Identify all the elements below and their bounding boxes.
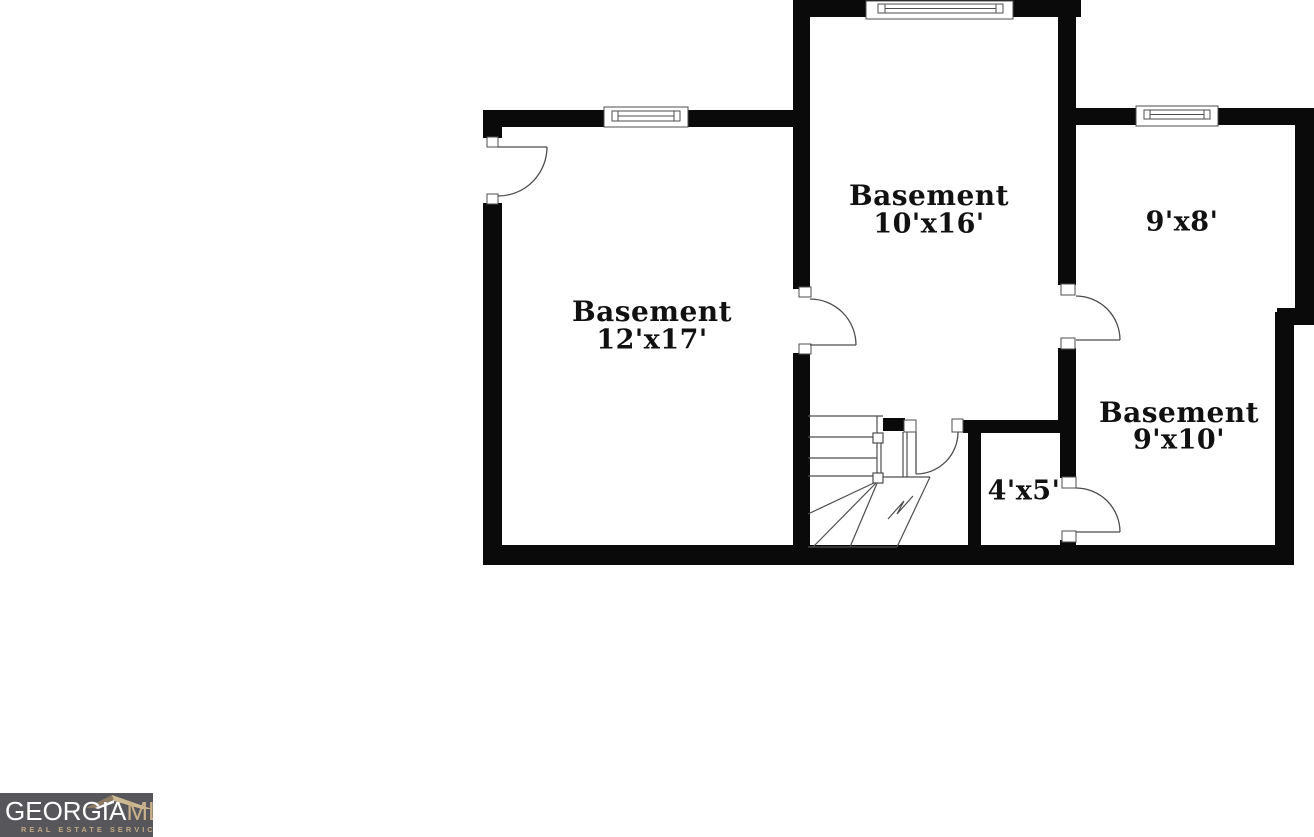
- logo-text-mls: MLS: [126, 796, 153, 826]
- logo-tagline: REAL ESTATE SERVICES: [21, 825, 153, 834]
- wall: [1295, 108, 1314, 312]
- window-icon: [604, 107, 688, 127]
- wall: [1275, 312, 1294, 565]
- room-label-9x8-dims: 9'x8': [1146, 209, 1219, 236]
- staircase: [808, 416, 930, 547]
- room-label-basement-10x16-name: Basement: [849, 182, 1009, 210]
- georgia-mls-logo: GEORGIAMLS REAL ESTATE SERVICES: [0, 793, 153, 837]
- window-icon: [1136, 106, 1218, 126]
- wall: [883, 418, 905, 431]
- logo-brand: GEORGIAMLS: [5, 798, 153, 824]
- window-icon: [866, 1, 1013, 19]
- floorplan-page: Basement 12'x17' Basement 10'x16' 9'x8' …: [0, 0, 1314, 837]
- room-label-basement-9x10-dims: 9'x10': [1133, 427, 1225, 454]
- door-arc: [916, 432, 958, 474]
- wall: [968, 432, 981, 548]
- wall: [483, 545, 1293, 565]
- room-label-basement-12x17-dims: 12'x17': [596, 327, 707, 354]
- wall: [793, 353, 810, 548]
- wall: [963, 420, 1076, 433]
- door-arc: [810, 299, 856, 345]
- door-arc: [1076, 488, 1120, 532]
- room-label-basement-10x16-dims: 10'x16': [873, 211, 984, 238]
- wall: [483, 203, 502, 565]
- wall: [483, 110, 502, 138]
- wall: [1060, 432, 1076, 478]
- logo-text-georgia: GEORGIA: [5, 796, 126, 826]
- wall: [1058, 348, 1076, 432]
- room-label-basement-12x17-name: Basement: [572, 298, 732, 326]
- wall: [1058, 0, 1076, 285]
- door-arc: [498, 147, 547, 196]
- room-label-basement-9x10-name: Basement: [1099, 399, 1259, 427]
- wall: [793, 0, 810, 289]
- walls: [483, 0, 1314, 565]
- door-arc: [1076, 296, 1120, 340]
- room-label-4x5-dims: 4'x5': [988, 478, 1061, 505]
